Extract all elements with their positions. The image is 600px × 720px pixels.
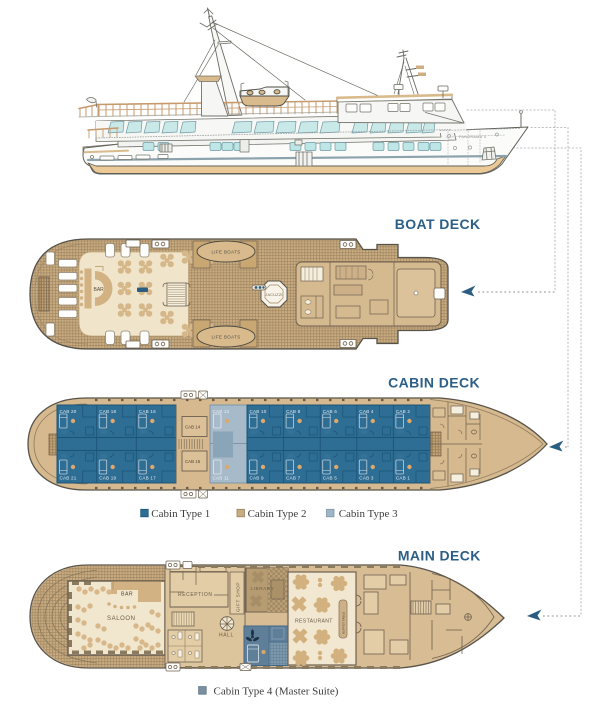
svg-text:CAB 17: CAB 17 bbox=[139, 476, 156, 481]
svg-text:GIFT SHOP: GIFT SHOP bbox=[236, 582, 241, 612]
svg-text:CAB 7: CAB 7 bbox=[286, 476, 301, 481]
svg-text:BAR: BAR bbox=[121, 592, 133, 598]
svg-text:CAB 8: CAB 8 bbox=[286, 409, 301, 414]
svg-text:CAB 11: CAB 11 bbox=[213, 476, 230, 481]
svg-text:CAB 5: CAB 5 bbox=[323, 476, 338, 481]
svg-text:HALL: HALL bbox=[219, 633, 234, 639]
svg-text:CAB 18: CAB 18 bbox=[99, 409, 116, 414]
svg-text:BUFFET TABLE: BUFFET TABLE bbox=[342, 612, 346, 634]
svg-text:CAB 2: CAB 2 bbox=[396, 409, 411, 414]
svg-text:Cabin Type 1: Cabin Type 1 bbox=[151, 508, 210, 520]
svg-text:JACUZZI: JACUZZI bbox=[265, 292, 282, 297]
svg-text:BAR: BAR bbox=[94, 287, 105, 293]
svg-text:CAB 20: CAB 20 bbox=[60, 409, 77, 414]
svg-text:Cabin Type 4 (Master Suite): Cabin Type 4 (Master Suite) bbox=[214, 686, 339, 698]
svg-text:SALOON: SALOON bbox=[107, 616, 136, 622]
svg-text:CAB 15: CAB 15 bbox=[185, 459, 201, 464]
svg-text:RESTAURANT: RESTAURANT bbox=[295, 619, 333, 625]
svg-text:CAB 14: CAB 14 bbox=[185, 425, 201, 430]
svg-text:Cabin Type 3: Cabin Type 3 bbox=[339, 508, 398, 520]
svg-text:CAB 3: CAB 3 bbox=[359, 476, 374, 481]
svg-text:RECEPTION: RECEPTION bbox=[178, 592, 213, 598]
svg-text:CABIN DECK: CABIN DECK bbox=[388, 375, 480, 391]
svg-text:LIBRARY: LIBRARY bbox=[251, 586, 275, 591]
svg-text:CAB 21: CAB 21 bbox=[60, 476, 77, 481]
svg-text:CAB 1: CAB 1 bbox=[396, 476, 411, 481]
svg-text:CAB 12: CAB 12 bbox=[213, 409, 230, 414]
svg-text:CAB 19: CAB 19 bbox=[99, 476, 116, 481]
svg-text:Cabin Type 2: Cabin Type 2 bbox=[248, 508, 307, 520]
svg-text:BOAT DECK: BOAT DECK bbox=[395, 216, 481, 232]
svg-text:CAB 4: CAB 4 bbox=[359, 409, 374, 414]
svg-text:LIFE BOATS: LIFE BOATS bbox=[211, 335, 240, 340]
svg-text:CAB 9: CAB 9 bbox=[250, 476, 265, 481]
svg-text:CAB 10: CAB 10 bbox=[250, 409, 267, 414]
svg-text:CAB 6: CAB 6 bbox=[323, 409, 338, 414]
svg-text:LIFE BOATS: LIFE BOATS bbox=[211, 250, 240, 255]
svg-text:MAIN DECK: MAIN DECK bbox=[398, 548, 481, 564]
svg-text:CAB 16: CAB 16 bbox=[139, 409, 156, 414]
